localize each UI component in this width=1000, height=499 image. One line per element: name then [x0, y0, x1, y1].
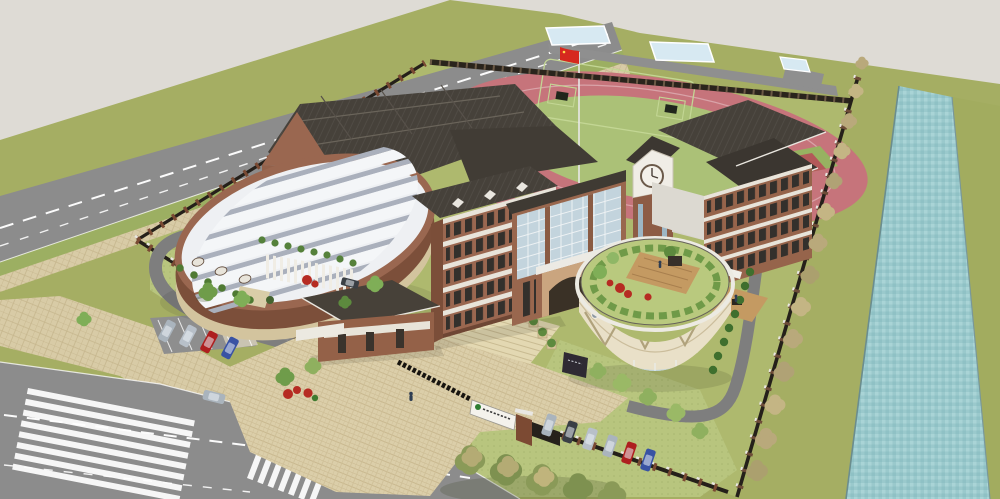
campus-render [0, 0, 1000, 499]
gate-sign-logo [475, 404, 481, 410]
pond-1 [546, 26, 610, 45]
roof-pergola [668, 256, 682, 266]
pond-2 [650, 42, 714, 62]
flag-star [563, 51, 566, 54]
